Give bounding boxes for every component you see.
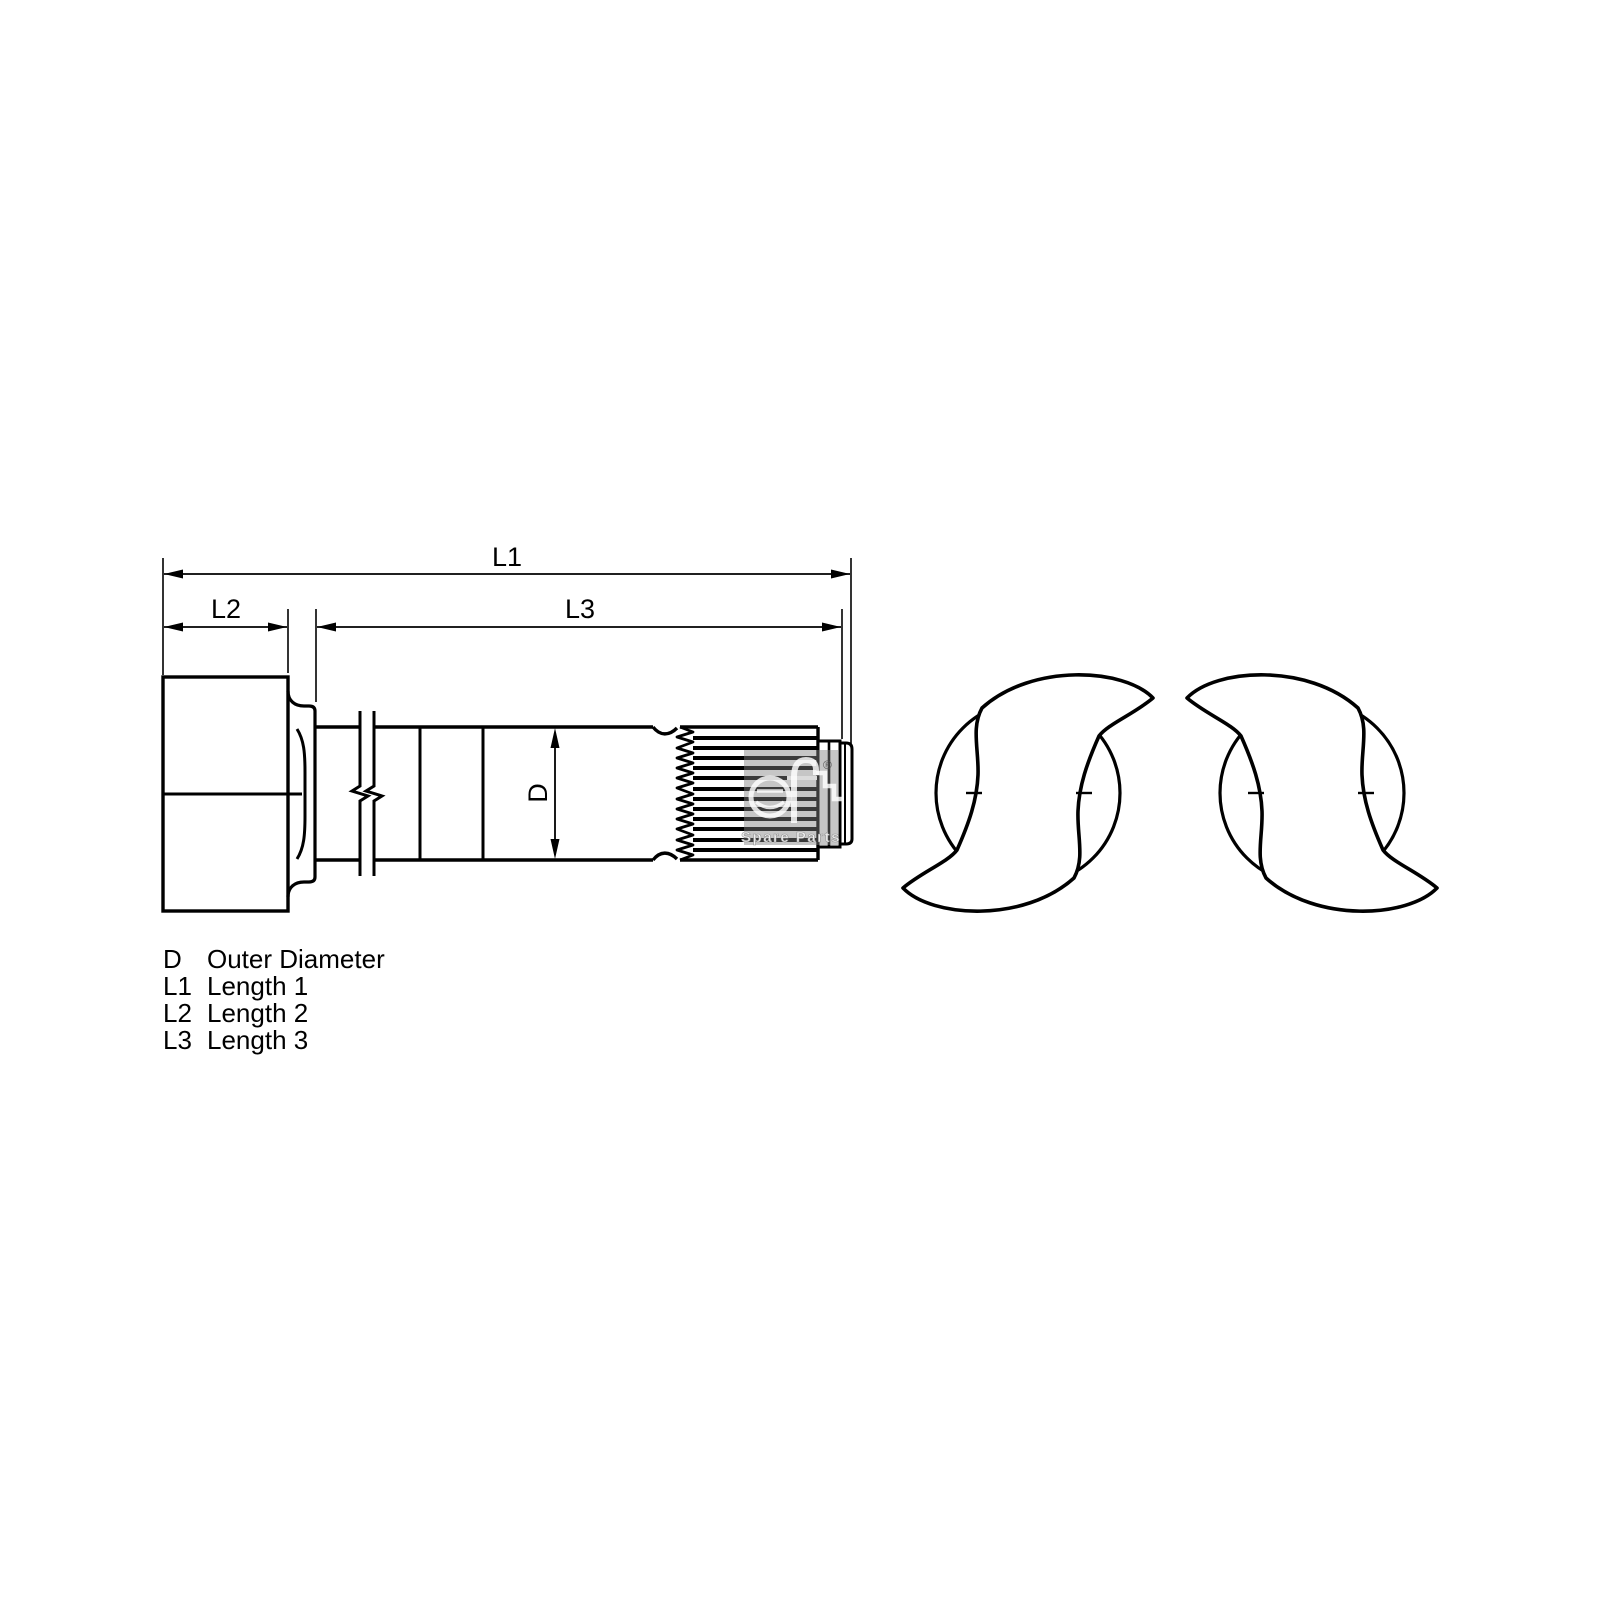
legend-description: Length 1: [207, 971, 308, 1001]
dimension-l3: L3: [317, 594, 841, 632]
spline-teeth-edge: [677, 727, 693, 860]
arrowhead-left-icon: [164, 623, 183, 632]
legend-symbol: L2: [163, 998, 192, 1028]
legend-symbol: L3: [163, 1025, 192, 1055]
dimension-l1-label: L1: [492, 542, 522, 572]
watermark-subtitle: Spare Parts: [741, 829, 841, 846]
legend-row: L2 Length 2: [163, 998, 308, 1028]
dimension-l2: L2: [164, 594, 287, 632]
arrowhead-right-icon: [268, 623, 287, 632]
arrowhead-up-icon: [551, 728, 560, 748]
arrowhead-down-icon: [551, 839, 560, 859]
dt-watermark: ® Spare Parts: [741, 750, 842, 846]
camshaft-technical-drawing: L1 L2 L3: [0, 0, 1600, 1600]
dimension-l3-label: L3: [565, 594, 595, 624]
legend-description: Length 2: [207, 998, 308, 1028]
legend-symbol: D: [163, 944, 182, 974]
legend-row: L1 Length 1: [163, 971, 308, 1001]
arrowhead-left-icon: [317, 623, 336, 632]
legend-description: Outer Diameter: [207, 944, 385, 974]
dimension-l2-label: L2: [211, 594, 241, 624]
legend-row: L3 Length 3: [163, 1025, 308, 1055]
arrowhead-right-icon: [822, 623, 841, 632]
shaft-break: [352, 711, 382, 876]
dimension-l1: L1: [164, 542, 850, 579]
cam-profile-left: [903, 675, 1153, 911]
dimension-d-label: D: [523, 783, 553, 803]
legend: D Outer Diameter L1 Length 1 L2 Length 2…: [163, 944, 385, 1055]
registered-mark: ®: [823, 758, 832, 772]
dimension-d: D: [523, 728, 560, 859]
legend-symbol: L1: [163, 971, 192, 1001]
legend-description: Length 3: [207, 1025, 308, 1055]
legend-row: D Outer Diameter: [163, 944, 385, 974]
cam-profile-right: [1187, 675, 1437, 911]
arrowhead-left-icon: [164, 570, 183, 579]
arrowhead-right-icon: [831, 570, 850, 579]
camshaft-technical-drawing-page: L1 L2 L3: [0, 0, 1600, 1600]
